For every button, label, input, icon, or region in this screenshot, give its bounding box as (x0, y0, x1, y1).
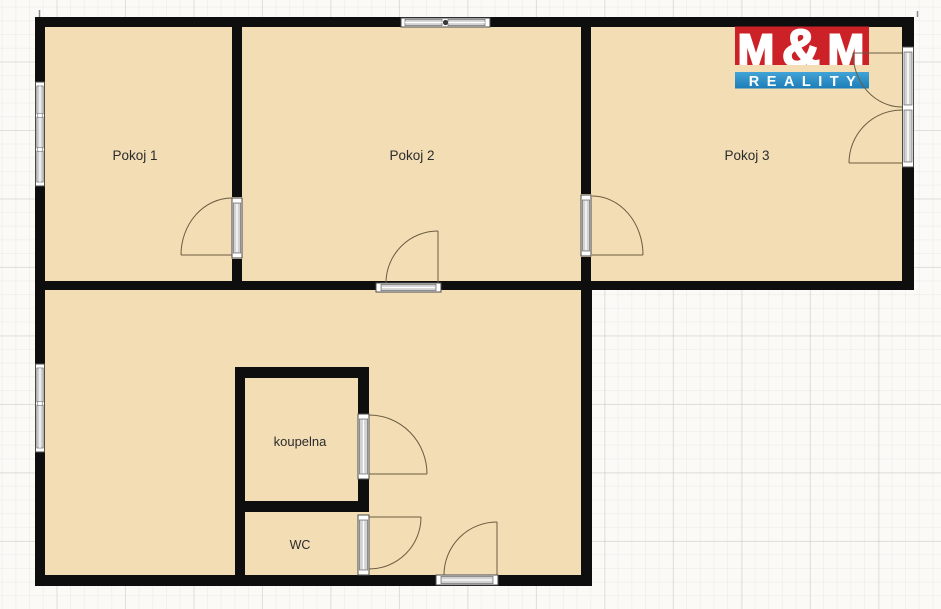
svg-text:REALITY: REALITY (749, 74, 864, 90)
svg-text:WC: WC (290, 538, 311, 552)
svg-text:Pokoj 3: Pokoj 3 (724, 148, 769, 163)
svg-text:Pokoj 2: Pokoj 2 (389, 148, 434, 163)
svg-text:koupelna: koupelna (274, 434, 328, 449)
svg-text:Pokoj 1: Pokoj 1 (112, 148, 157, 163)
